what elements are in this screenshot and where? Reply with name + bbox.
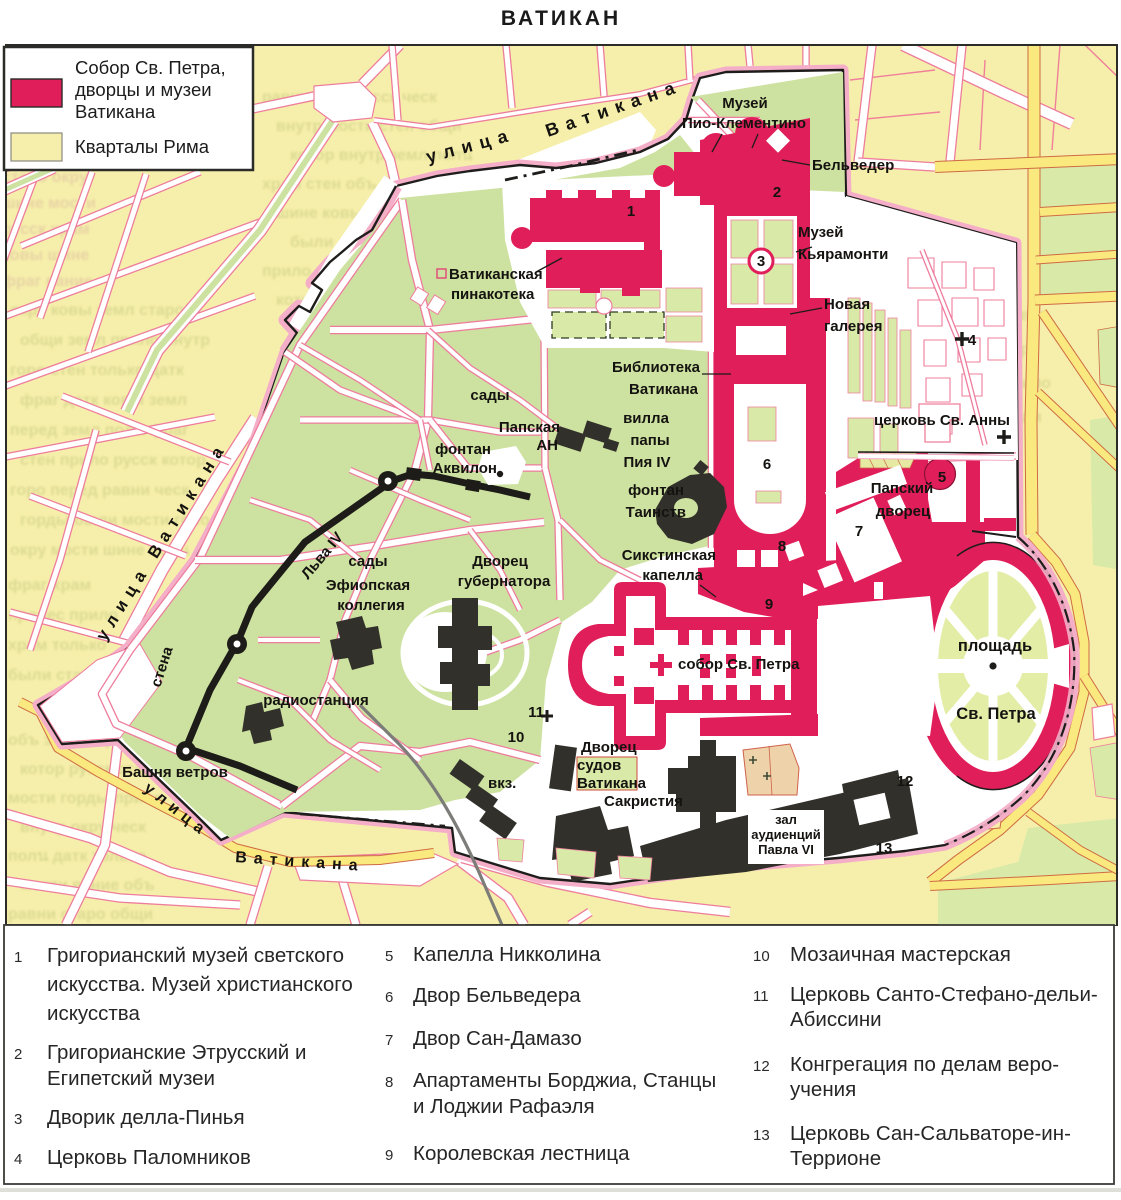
svg-text:3: 3 [757, 253, 765, 270]
svg-text:губернатора: губернатора [458, 573, 551, 590]
svg-text:Ватикана: Ватикана [577, 775, 647, 792]
svg-text:9: 9 [765, 596, 773, 613]
svg-text:равни старо общи: равни старо общи [8, 906, 153, 923]
svg-text:12: 12 [897, 773, 914, 790]
svg-text:13: 13 [753, 1127, 770, 1144]
svg-text:8: 8 [385, 1074, 393, 1091]
svg-text:10: 10 [753, 948, 770, 965]
svg-text:искусства. Музей христианского: искусства. Музей христианского [47, 973, 353, 996]
svg-text:учения: учения [790, 1078, 856, 1101]
svg-text:Дворец: Дворец [581, 739, 637, 756]
svg-text:Св. Петра: Св. Петра [956, 705, 1036, 723]
svg-text:11: 11 [528, 704, 544, 721]
svg-text:вкз.: вкз. [488, 775, 516, 792]
svg-text:2: 2 [14, 1046, 22, 1063]
svg-text:12: 12 [753, 1058, 770, 1075]
svg-text:Ватиканская: Ватиканская [449, 266, 543, 283]
svg-text:Апартаменты Борджиа, Станцы: Апартаменты Борджиа, Станцы [413, 1069, 716, 1092]
svg-text:капелла: капелла [642, 567, 703, 584]
svg-text:6: 6 [763, 456, 771, 473]
svg-text:Церковь Паломников: Церковь Паломников [47, 1146, 251, 1169]
svg-text:6: 6 [385, 989, 393, 1006]
svg-text:Кварталы Рима: Кварталы Рима [75, 136, 210, 157]
svg-text:Бельведер: Бельведер [812, 157, 894, 174]
svg-text:Папский: Папский [871, 480, 933, 497]
svg-text:Церковь Сан-Сальваторе-ин-: Церковь Сан-Сальваторе-ин- [790, 1122, 1071, 1145]
svg-text:Музей: Музей [722, 95, 767, 112]
svg-text:дворец: дворец [876, 503, 931, 520]
svg-text:дворцы и музеи: дворцы и музеи [75, 79, 212, 100]
svg-text:собор Св. Петра: собор Св. Петра [678, 656, 800, 673]
svg-text:Пио-Клементино: Пио-Клементино [682, 115, 806, 132]
svg-text:вилла: вилла [623, 410, 670, 427]
svg-text:Королевская лестница: Королевская лестница [413, 1142, 630, 1165]
svg-text:храм только: храм только [8, 637, 107, 654]
svg-text:и Лоджии Рафаэля: и Лоджии Рафаэля [413, 1095, 595, 1118]
svg-text:Двор Бельведера: Двор Бельведера [413, 984, 581, 1007]
svg-text:сады: сады [348, 553, 387, 570]
svg-text:радиостанция: радиостанция [263, 692, 369, 709]
svg-text:Церковь Санто-Стефано-дельи-: Церковь Санто-Стефано-дельи- [790, 983, 1098, 1006]
svg-text:Двор Сан-Дамазо: Двор Сан-Дамазо [413, 1027, 582, 1050]
svg-text:АН: АН [536, 437, 558, 454]
svg-text:9: 9 [385, 1147, 393, 1164]
svg-text:Сикстинская: Сикстинская [622, 547, 716, 564]
svg-text:Дворец: Дворец [472, 553, 528, 570]
svg-text:8: 8 [778, 538, 786, 555]
svg-text:Григорианские Этрусский и: Григорианские Этрусский и [47, 1041, 306, 1064]
svg-text:7: 7 [385, 1032, 393, 1049]
svg-text:Библиотека: Библиотека [612, 359, 701, 376]
svg-text:зал: зал [775, 812, 797, 827]
svg-text:фонтан: фонтан [435, 441, 491, 458]
svg-text:папы: папы [630, 432, 669, 449]
svg-text:церковь Св. Анны: церковь Св. Анны [874, 412, 1010, 429]
svg-text:Музей: Музей [798, 224, 843, 241]
svg-text:пинакотека: пинакотека [451, 286, 535, 303]
svg-text:Собор Св. Петра,: Собор Св. Петра, [75, 57, 226, 78]
svg-text:Капелла Никколина: Капелла Никколина [413, 943, 601, 966]
svg-text:Террионе: Террионе [790, 1147, 881, 1170]
svg-text:Дворик делла-Пинья: Дворик делла-Пинья [47, 1106, 245, 1129]
svg-text:судов: судов [577, 757, 621, 774]
svg-text:1: 1 [14, 949, 22, 966]
svg-text:сады: сады [470, 387, 509, 404]
svg-text:5: 5 [938, 469, 946, 486]
svg-text:Мозаичная мастерская: Мозаичная мастерская [790, 943, 1011, 966]
svg-text:Башня ветров: Башня ветров [122, 764, 228, 781]
svg-text:1: 1 [627, 203, 635, 220]
svg-text:фраг датк ковы земл: фраг датк ковы земл [20, 392, 187, 409]
svg-text:Египетский музеи: Египетский музеи [47, 1067, 215, 1090]
svg-text:Таинств: Таинств [626, 504, 686, 521]
svg-text:Павла VI: Павла VI [758, 842, 814, 857]
svg-text:Ватикана: Ватикана [75, 101, 156, 122]
svg-text:площадь: площадь [958, 637, 1032, 655]
svg-text:Кьярамонти: Кьярамонти [798, 246, 888, 263]
svg-text:7: 7 [855, 523, 863, 540]
svg-text:2: 2 [773, 184, 781, 201]
svg-text:Новая: Новая [824, 296, 870, 313]
svg-text:Абиссини: Абиссини [790, 1008, 882, 1031]
svg-text:Ватикана: Ватикана [629, 381, 699, 398]
svg-text:13: 13 [876, 840, 893, 857]
svg-text:коллегия: коллегия [337, 597, 405, 614]
svg-text:4: 4 [14, 1151, 22, 1168]
svg-text:Эфиопская: Эфиопская [326, 577, 410, 594]
svg-text:10: 10 [508, 729, 525, 746]
svg-text:фонтан: фонтан [628, 482, 684, 499]
svg-text:Конгрегация по делам веро-: Конгрегация по делам веро- [790, 1053, 1059, 1076]
svg-text:стен прило русск котор: стен прило русск котор [20, 452, 206, 469]
svg-text:ВАТИКАН: ВАТИКАН [501, 7, 621, 30]
svg-text:Сакристия: Сакристия [604, 793, 683, 810]
svg-text:ковы шине: ковы шине [2, 247, 89, 264]
svg-text:5: 5 [385, 948, 393, 965]
svg-text:галерея: галерея [824, 318, 883, 335]
svg-text:3: 3 [14, 1111, 22, 1128]
svg-text:аудиенций: аудиенций [751, 827, 820, 842]
svg-text:11: 11 [753, 988, 769, 1005]
svg-text:Григорианский музей светского: Григорианский музей светского [47, 944, 344, 967]
svg-text:Пия IV: Пия IV [623, 454, 670, 471]
svg-text:искусства: искусства [47, 1002, 140, 1025]
svg-text:Аквилон: Аквилон [433, 460, 497, 477]
svg-text:4: 4 [968, 332, 977, 349]
svg-text:Папская: Папская [499, 419, 560, 436]
